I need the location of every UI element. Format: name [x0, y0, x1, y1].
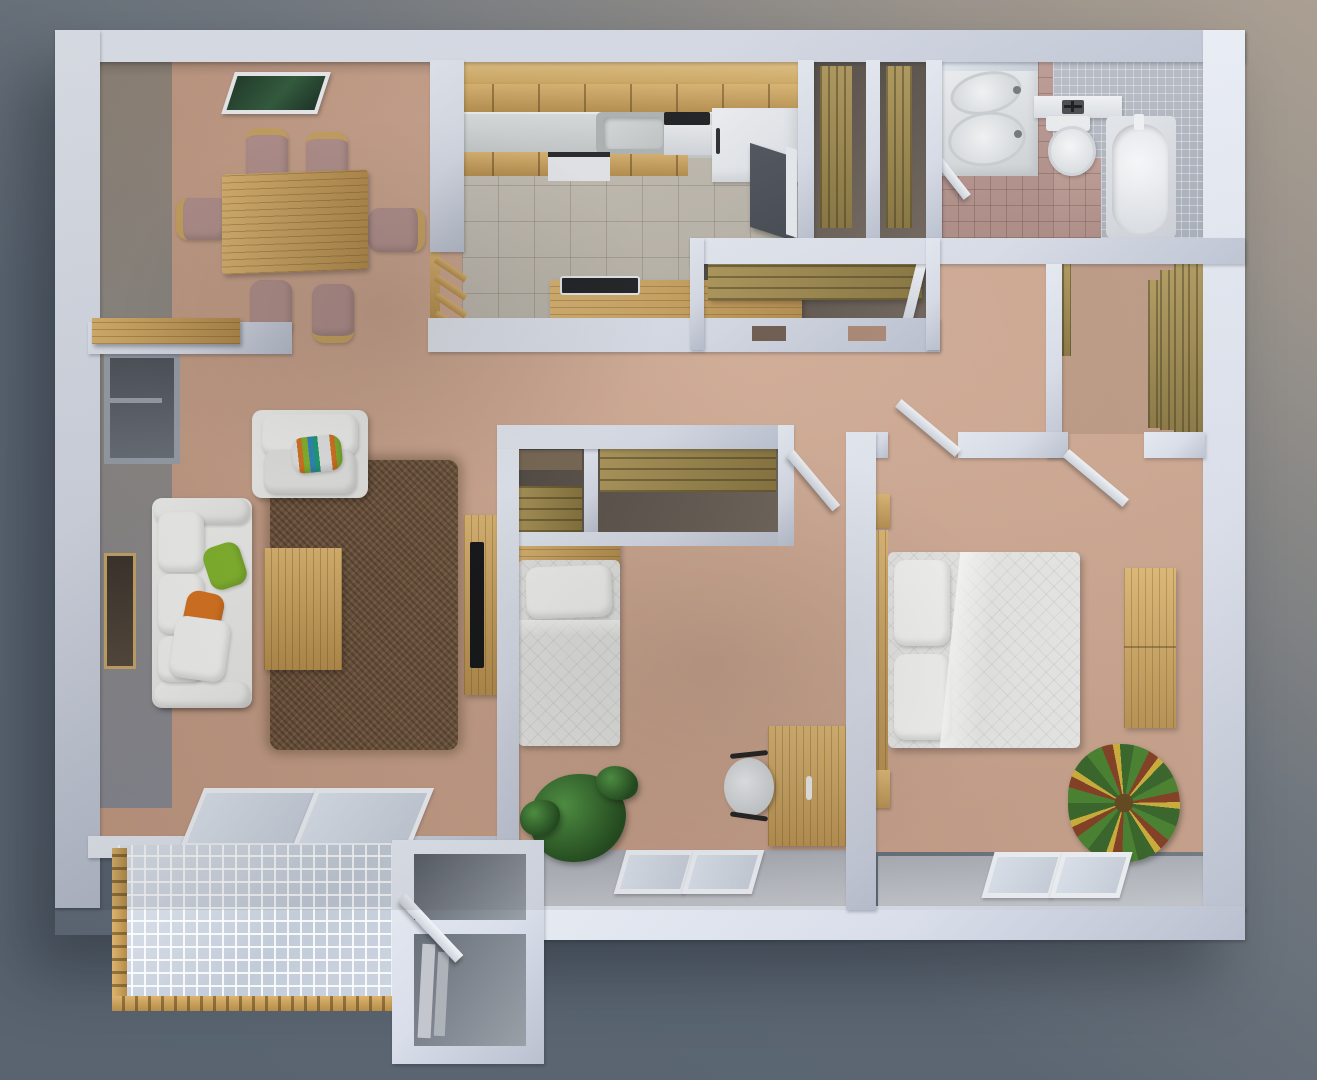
floor-plan-render: [0, 0, 1317, 1080]
tub-faucet: [1134, 114, 1144, 130]
wall-bedroom1-closet-north: [497, 425, 793, 449]
wall-niche: [104, 553, 136, 669]
kitchen-sink-basin: [603, 117, 663, 149]
walkin-shelf-panel: [1174, 262, 1188, 432]
bed1-sheet-fold: [518, 620, 620, 636]
refrigerator-handle: [716, 128, 720, 154]
wall-art: [221, 72, 331, 114]
tv-screen: [470, 542, 484, 668]
dresser: [1124, 568, 1176, 728]
wall-hallcloset-east: [926, 238, 940, 350]
wall-bedroom2-north: [958, 432, 1068, 458]
hall-closet-shelf: [708, 260, 922, 300]
balcony-lattice-floor: [118, 845, 396, 1000]
storage-room-interior: [414, 854, 526, 920]
balcony-wood-rail-bottom: [112, 996, 398, 1011]
faucet-cross-bar: [1071, 101, 1074, 112]
balcony-wood-rail-left: [112, 848, 127, 1010]
pillow-white: [168, 614, 232, 683]
wall-bedroom2-north: [1144, 432, 1205, 458]
toilet-bowl: [1048, 126, 1096, 176]
wall-mid-horizontal: [690, 238, 1245, 264]
sink-faucet: [1013, 86, 1021, 94]
wall-dining-kitchen: [430, 60, 464, 252]
stove-body: [664, 125, 712, 155]
dining-table: [222, 169, 368, 274]
sink-faucet: [1014, 130, 1022, 138]
wall-bathroom-west: [926, 60, 942, 240]
wall-window: [104, 352, 180, 464]
sofa-armrest: [154, 682, 250, 708]
soffit-opening: [752, 326, 786, 341]
walkin-shelf-panel: [1148, 280, 1160, 428]
striped-pillow: [290, 433, 343, 474]
coffee-table: [264, 548, 342, 670]
plant-frond: [596, 766, 638, 800]
walkin-shelf-panel: [1160, 270, 1174, 430]
bathtub: [1112, 124, 1168, 234]
closet-divider-wall: [584, 448, 598, 534]
sliding-glass-door-panel: [292, 788, 434, 848]
sofa-back-cushion: [158, 512, 204, 572]
bed1-pillow: [525, 565, 613, 620]
wall-closet-partition: [866, 60, 880, 240]
window-divider: [110, 398, 162, 403]
wall-walkin-west: [1046, 264, 1062, 458]
linen-closet-shelves: [820, 66, 852, 228]
wall-bedrooms-divider: [846, 432, 876, 910]
wall-bedroom1-closet-east: [778, 425, 794, 546]
bed2-pillow: [894, 560, 950, 646]
bedroom1-closet-shelf: [512, 486, 582, 532]
wall-outer-bottom: [490, 906, 1245, 940]
entry-door-frame: [786, 146, 797, 238]
wall-shelf-ledge: [92, 318, 240, 344]
dining-chair: [312, 284, 354, 343]
vanity-mirror: [942, 62, 1038, 71]
peninsula-cooktop: [560, 276, 640, 295]
dining-chair: [368, 208, 425, 252]
wall-hallcloset-west: [690, 238, 704, 350]
wall-bedroom1-closet-south: [497, 532, 793, 546]
walkin-shelf-panel: [1188, 254, 1203, 434]
bedroom1-window: [682, 850, 765, 894]
wall-outer-right: [1203, 30, 1245, 910]
croton-plant: [1068, 744, 1180, 862]
upper-cabinets-top: [448, 60, 802, 84]
wall-outer-left: [55, 30, 100, 908]
dresser-seam: [1124, 646, 1176, 648]
dishwasher: [548, 152, 610, 181]
linen-closet-shelves: [886, 66, 912, 228]
bedroom1-closet-shelf-top: [512, 450, 582, 470]
walkin-shelf-panel: [1062, 264, 1071, 356]
soffit-opening: [848, 326, 886, 341]
bedroom1-closet-shelf: [600, 448, 776, 492]
office-chair-seat: [724, 758, 774, 816]
desk-handle: [806, 776, 812, 800]
stove-cooktop: [664, 112, 710, 125]
wall-kitchen-entry: [798, 60, 814, 240]
wall-outer-top: [55, 30, 1245, 62]
bedroom2-window: [1049, 852, 1132, 898]
wall-living-bedroom1: [497, 449, 519, 862]
